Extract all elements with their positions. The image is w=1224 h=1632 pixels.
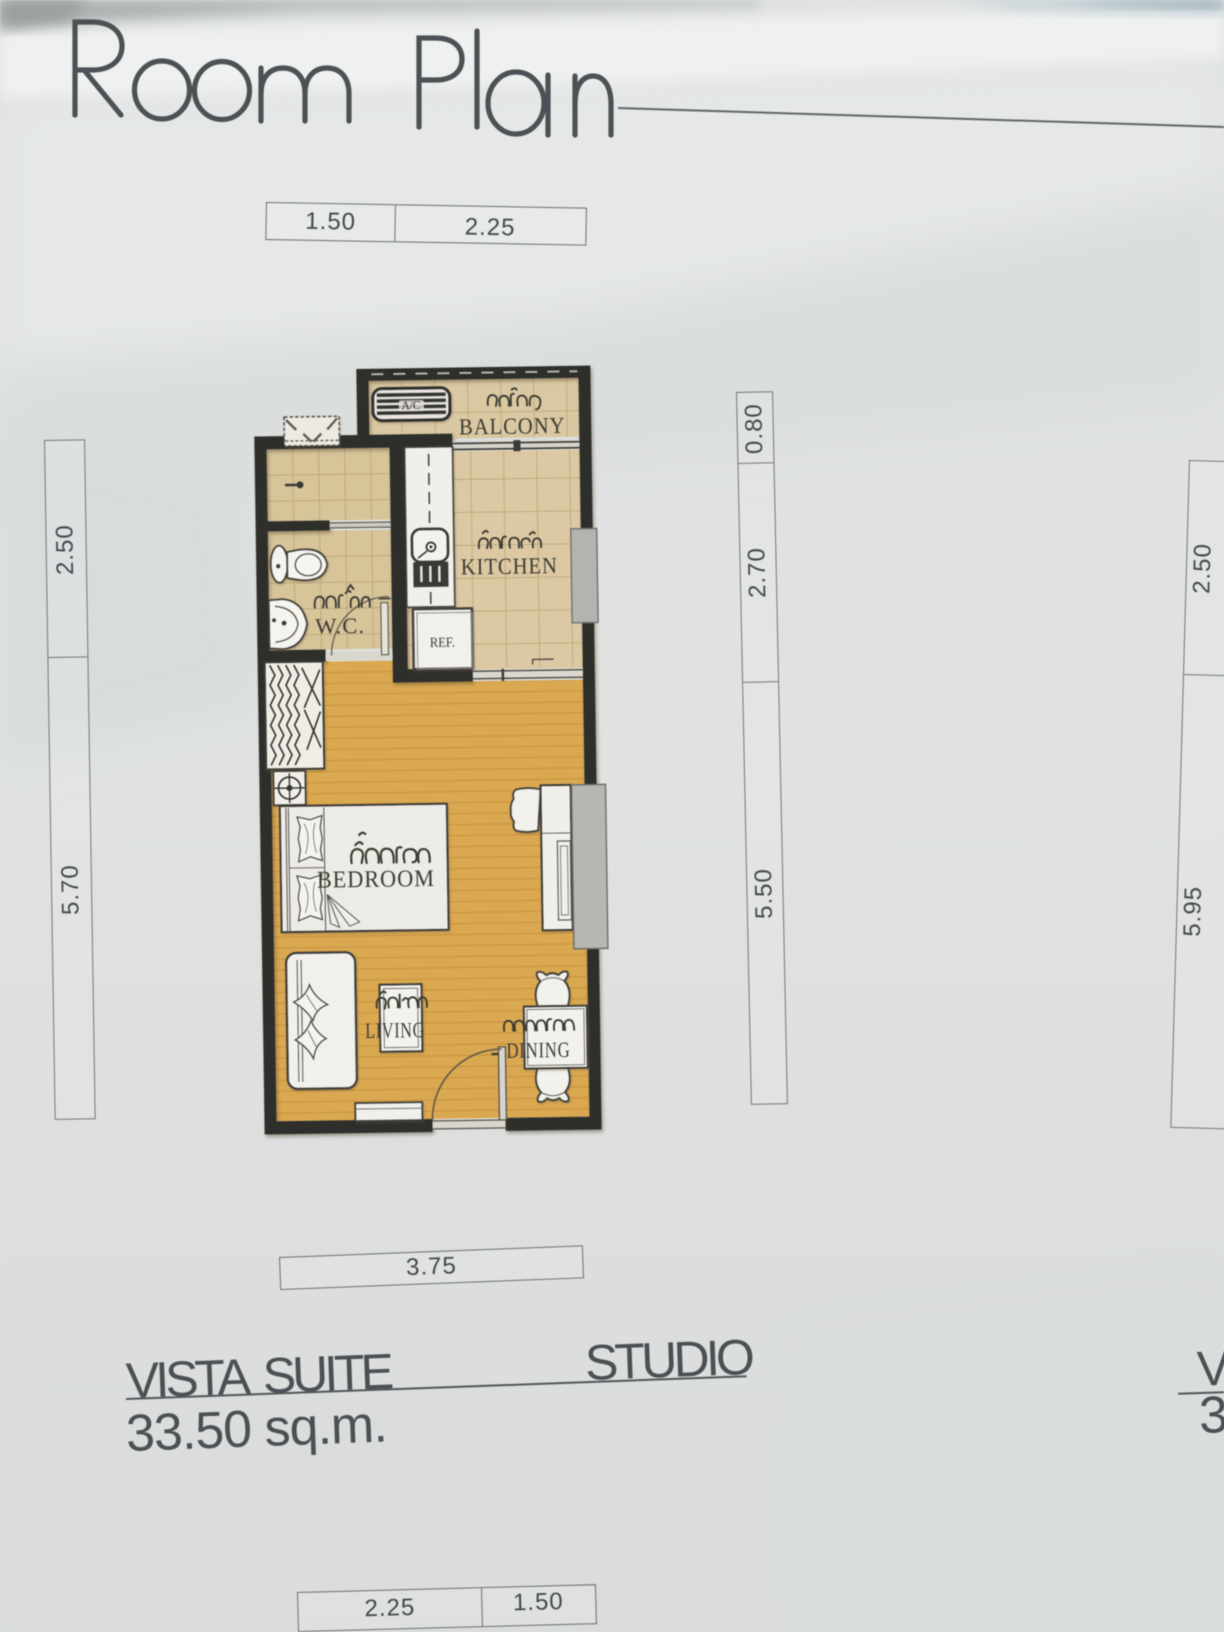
svg-text:W.C.: W.C. <box>315 613 365 638</box>
svg-text:A/C: A/C <box>401 399 420 413</box>
svg-text:LIVING: LIVING <box>365 1019 425 1044</box>
svg-text:KITCHEN: KITCHEN <box>461 553 558 580</box>
svg-text:DINING: DINING <box>506 1039 570 1064</box>
svg-text:BEDROOM: BEDROOM <box>317 865 435 894</box>
svg-text:BALCONY: BALCONY <box>459 413 566 440</box>
svg-text:REF.: REF. <box>430 634 455 650</box>
